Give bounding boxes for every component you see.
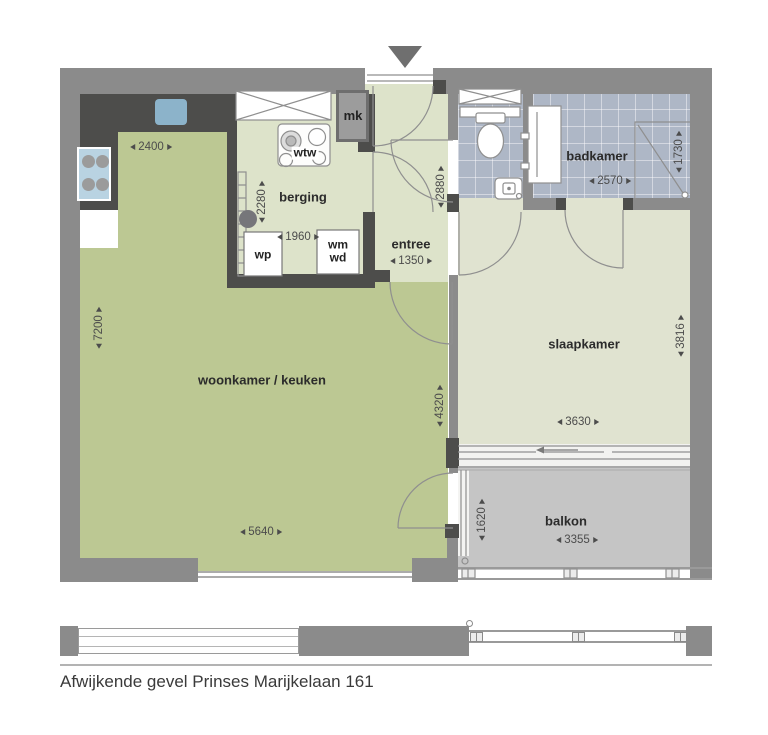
label-wd: wd: [328, 251, 348, 264]
dim-arrow-right-icon: [479, 499, 485, 504]
plan-caption: Afwijkende gevel Prinses Marijkelaan 161: [60, 672, 374, 692]
label-wm: wm: [328, 238, 348, 251]
dim-arrow-left-icon: [556, 537, 561, 543]
floorplan-canvas: woonkamer / keuken berging entree badkam…: [0, 0, 768, 735]
dim-balkon-width: 3355: [556, 534, 598, 546]
dim-arrow-right-icon: [593, 537, 598, 543]
label-entree: entree: [391, 237, 430, 252]
dim-arrow-left-icon: [479, 536, 485, 541]
dim-arrow-left-icon: [96, 344, 102, 349]
dim-arrow-right-icon: [676, 131, 682, 136]
balcony-balustrade: [458, 558, 712, 579]
label-berging: berging: [279, 190, 327, 205]
slaapkamer-door-arc: [459, 212, 521, 275]
label-balkon: balkon: [545, 514, 587, 529]
dim-berging-width: 1960: [277, 231, 319, 243]
dim-arrow-left-icon: [277, 234, 282, 240]
entrance-threshold-lines: [367, 75, 433, 81]
dim-arrow-right-icon: [427, 258, 432, 264]
label-mk: mk: [344, 109, 363, 123]
label-woonkamer: woonkamer / keuken: [198, 373, 326, 388]
dim-entree-width: 1350: [390, 255, 432, 267]
badkamer-door-arc: [565, 210, 623, 268]
berging-door-arc: [373, 152, 433, 212]
closet-crossed-box: [236, 91, 331, 120]
toilet-icon: [476, 113, 505, 158]
dim-slaapkamer-depth: 3816: [675, 315, 687, 357]
dim-slaapkamer-width: 3630: [557, 416, 599, 428]
dim-woonkamer-depth: 7200: [93, 307, 105, 349]
dim-arrow-right-icon: [277, 529, 282, 535]
dim-shower-depth: 1730: [673, 131, 685, 173]
dim-balkon-depth: 1620: [476, 499, 488, 541]
dim-arrow-left-icon: [259, 218, 265, 223]
dim-badkamer-width: 2570: [589, 175, 631, 187]
dim-arrow-left-icon: [130, 144, 135, 150]
dim-arrow-left-icon: [557, 419, 562, 425]
dim-arrow-left-icon: [438, 203, 444, 208]
dim-arrow-right-icon: [626, 178, 631, 184]
dim-arrow-left-icon: [678, 352, 684, 357]
dim-arrow-right-icon: [437, 385, 443, 390]
radiator-icon: [521, 106, 561, 183]
dim-arrow-left-icon: [240, 529, 245, 535]
dim-arrow-right-icon: [314, 234, 319, 240]
plan-detail-layer: [0, 0, 768, 735]
dim-kitchen-width: 2400: [130, 141, 172, 153]
label-wtw: wtw: [292, 147, 319, 160]
balcony-door-arc: [398, 473, 453, 528]
dim-arrow-right-icon: [96, 307, 102, 312]
dim-arrow-left-icon: [676, 168, 682, 173]
basin-icon: [495, 178, 522, 199]
dim-entree-depth: 2880: [435, 166, 447, 208]
dim-arrow-right-icon: [678, 315, 684, 320]
label-slaapkamer: slaapkamer: [548, 337, 620, 352]
dim-arrow-right-icon: [259, 181, 265, 186]
dim-arrow-left-icon: [589, 178, 594, 184]
entrance-door-arc: [373, 86, 433, 146]
entrance-arrow-icon: [388, 46, 422, 68]
slaapkamer-window-glazing: [458, 446, 690, 467]
label-badkamer: badkamer: [566, 149, 627, 164]
dim-arrow-left-icon: [437, 422, 443, 427]
dim-arrow-right-icon: [438, 166, 444, 171]
dim-arrow-right-icon: [594, 419, 599, 425]
dim-woonkamer-width: 5640: [240, 526, 282, 538]
balcony-side-glazing: [461, 470, 466, 556]
woonkamer-door-arc: [390, 282, 452, 344]
dim-arrow-right-icon: [167, 144, 172, 150]
dim-berging-depth: 2280: [256, 181, 268, 223]
label-wm-wd: wm wd: [328, 238, 348, 263]
dim-woonkamer-east-depth: 4320: [434, 385, 446, 427]
label-wp: wp: [255, 249, 272, 262]
woonkamer-window-glazing: [198, 572, 412, 577]
dim-arrow-left-icon: [390, 258, 395, 264]
